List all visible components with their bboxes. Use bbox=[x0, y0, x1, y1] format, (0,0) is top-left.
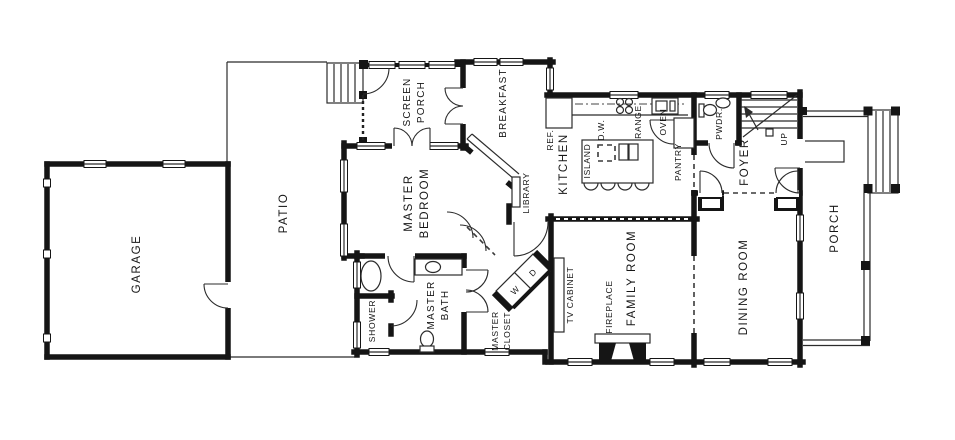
stairs-arrow-icon bbox=[744, 106, 753, 118]
toilet-tank bbox=[420, 346, 434, 352]
label-refrigerator: REF. bbox=[545, 129, 555, 150]
tv-cabinet bbox=[554, 258, 564, 332]
label-island: ISLAND bbox=[582, 144, 592, 179]
room-label-master-closet-2: CLOSET bbox=[502, 312, 512, 350]
island-stools bbox=[584, 183, 649, 190]
label-range: RANGE bbox=[633, 105, 643, 139]
room-label-breakfast: BREAKFAST bbox=[498, 68, 509, 138]
stairs bbox=[741, 95, 797, 137]
window-garage-1 bbox=[84, 161, 106, 168]
closet-double-doors bbox=[466, 270, 488, 312]
window-bath-w2 bbox=[354, 322, 361, 348]
window-bedroom-w1 bbox=[341, 160, 348, 192]
room-label-screen-porch-2: PORCH bbox=[416, 81, 427, 123]
front-stoop bbox=[802, 141, 844, 162]
window-kitchen bbox=[610, 92, 638, 99]
room-label-master-bath-2: BATH bbox=[440, 290, 451, 321]
window-breakfast-2 bbox=[500, 59, 523, 66]
window-bath-w1 bbox=[354, 262, 361, 288]
window-dining-ne bbox=[797, 215, 804, 241]
window-bedroom-n1 bbox=[357, 143, 385, 150]
refrigerator-fixture bbox=[546, 98, 572, 128]
screen-panel bbox=[399, 62, 425, 69]
window-family-1 bbox=[568, 359, 592, 366]
family-room-door bbox=[514, 222, 548, 256]
screen-porch-steps bbox=[327, 63, 363, 103]
room-label-library: LIBRARY bbox=[521, 172, 531, 213]
porch-steps bbox=[864, 107, 901, 194]
window-powder bbox=[705, 92, 729, 99]
patio-outline bbox=[227, 62, 355, 357]
screen-panel bbox=[429, 62, 455, 69]
room-label-screen-porch-1: SCREEN bbox=[402, 78, 413, 127]
room-label-foyer: FOYER bbox=[739, 138, 751, 186]
bedroom-angled-doors bbox=[447, 212, 486, 251]
room-label-kitchen: KITCHEN bbox=[558, 133, 570, 195]
label-pantry: PANTRY bbox=[673, 143, 683, 181]
window-family-2 bbox=[650, 359, 674, 366]
window-bedroom-n2 bbox=[430, 143, 458, 150]
label-stairs-up: UP bbox=[779, 132, 789, 145]
range-burners bbox=[617, 99, 633, 114]
floor-plan-page: W D bbox=[0, 0, 955, 440]
washer-dryer-unit: W D bbox=[492, 250, 556, 314]
screen-porch-entry-door bbox=[363, 68, 389, 94]
dining-door-left bbox=[700, 171, 722, 193]
room-labels: GARAGE PATIO SCREEN PORCH BREAKFAST MAST… bbox=[131, 68, 841, 351]
window-bath-s bbox=[369, 349, 389, 356]
room-label-garage: GARAGE bbox=[131, 235, 143, 294]
window-dining-s1 bbox=[704, 359, 730, 366]
room-label-master-bath-1: MASTER bbox=[426, 281, 437, 330]
room-label-master-bedroom-1: MASTER bbox=[403, 174, 415, 232]
window-garage-2 bbox=[163, 161, 185, 168]
label-fireplace: FIREPLACE bbox=[604, 280, 614, 334]
window-dining-s2 bbox=[768, 359, 792, 366]
room-label-master-closet-1: MASTER bbox=[490, 311, 500, 351]
kitchen-island bbox=[582, 140, 653, 183]
window-breakfast-1 bbox=[474, 59, 497, 66]
window-stairs bbox=[751, 92, 787, 99]
window-dining-se bbox=[797, 293, 804, 319]
screen-panel bbox=[369, 62, 395, 69]
room-label-patio: PATIO bbox=[278, 193, 290, 234]
tub-fixture bbox=[361, 261, 381, 291]
sink-fixture bbox=[716, 98, 730, 108]
toilet-fixture bbox=[421, 331, 434, 347]
window-breakfast-right bbox=[547, 68, 554, 90]
label-tv-cabinet: TV CABINET bbox=[565, 266, 575, 323]
room-label-master-bedroom-2: BEDROOM bbox=[419, 168, 431, 239]
fireplace-fixture bbox=[595, 334, 650, 361]
floor-plan-drawing: W D bbox=[0, 0, 955, 440]
vanity-sink bbox=[426, 262, 441, 273]
window-bedroom-w2 bbox=[341, 224, 348, 256]
shower-door bbox=[391, 300, 417, 326]
room-label-porch: PORCH bbox=[829, 203, 841, 253]
room-label-dining-room: DINING ROOM bbox=[738, 239, 750, 336]
label-dishwasher: D.W. bbox=[596, 119, 606, 140]
room-label-shower: SHOWER bbox=[367, 300, 377, 342]
front-door bbox=[775, 168, 800, 193]
room-label-powder: PWDR. bbox=[714, 108, 724, 140]
room-label-family-room: FAMILY ROOM bbox=[626, 230, 638, 326]
label-oven: OVEN bbox=[658, 109, 668, 136]
